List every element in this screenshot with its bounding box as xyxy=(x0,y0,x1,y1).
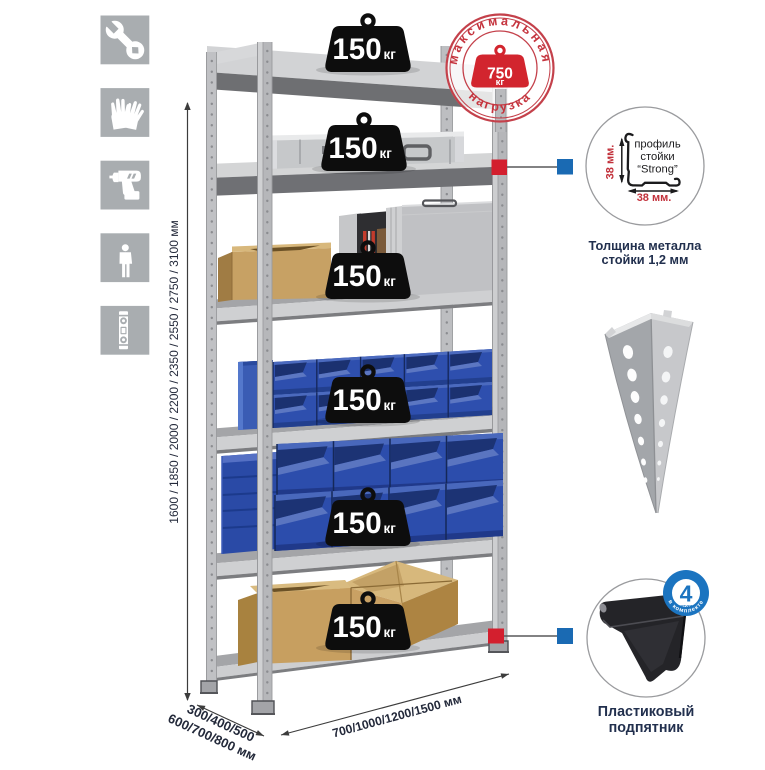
svg-text:1600 / 1850 / 2000 / 2200 / 23: 1600 / 1850 / 2000 / 2200 / 2350 / 2550 … xyxy=(167,220,181,523)
svg-text:стойки: стойки xyxy=(640,151,674,163)
svg-text:38 мм.: 38 мм. xyxy=(605,145,617,180)
svg-text:подпятник: подпятник xyxy=(609,720,685,736)
svg-text:стойки 1,2 мм: стойки 1,2 мм xyxy=(601,252,688,267)
svg-text:38 мм.: 38 мм. xyxy=(637,192,672,204)
svg-text:Пластиковый: Пластиковый xyxy=(598,704,695,720)
svg-text:“Strong”: “Strong” xyxy=(637,164,678,176)
svg-text:кг: кг xyxy=(496,77,505,88)
svg-text:профиль: профиль xyxy=(634,139,680,151)
svg-text:Толщина металла: Толщина металла xyxy=(589,238,703,253)
